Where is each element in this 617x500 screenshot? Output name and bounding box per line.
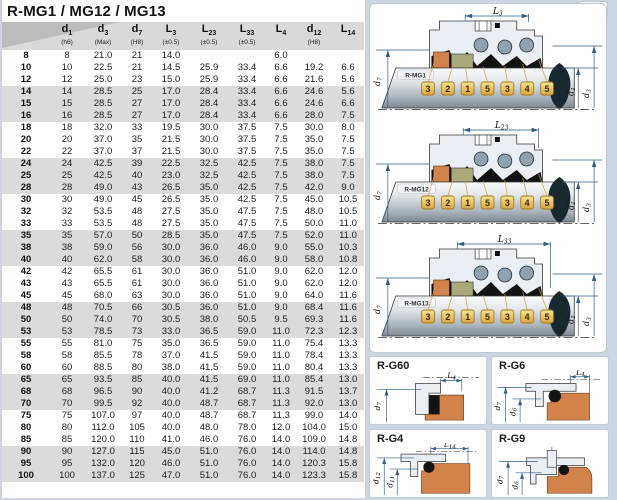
svg-text:5: 5 xyxy=(545,312,550,322)
value-cell: 53 xyxy=(50,326,84,338)
value-cell: 42.0 xyxy=(296,182,332,194)
row-size-cell: 55 xyxy=(2,338,50,350)
row-size-cell: 16 xyxy=(2,110,50,122)
value-cell: 35.0 xyxy=(190,194,228,206)
value-cell: 48 xyxy=(50,302,84,314)
value-cell: 6.0 xyxy=(266,50,296,62)
row-size-cell: 95 xyxy=(2,458,50,470)
value-cell: 38 xyxy=(50,242,84,254)
row-size-cell: 25 xyxy=(2,170,50,182)
dim-label-d11: d11 xyxy=(386,476,396,488)
value-cell: 42.5 xyxy=(228,158,266,170)
callout-badges: 3 2 1 5 3 4 5 xyxy=(422,82,554,95)
value-cell: 64.0 xyxy=(296,290,332,302)
dim-label-d7: d7 xyxy=(493,402,503,411)
value-cell: 7.5 xyxy=(266,230,296,242)
row-size-cell: 35 xyxy=(2,230,50,242)
value-cell: 30.0 xyxy=(152,290,190,302)
value-cell: 46.0 xyxy=(228,242,266,254)
value-cell: 28.5 xyxy=(84,110,122,122)
value-cell: 70 xyxy=(50,398,84,410)
value-cell: 90 xyxy=(122,386,152,398)
value-cell: 21.5 xyxy=(152,134,190,146)
row-size-cell: 70 xyxy=(2,398,50,410)
value-cell: 13.0 xyxy=(332,374,364,386)
value-cell: 47.5 xyxy=(228,206,266,218)
value-cell: 13.3 xyxy=(332,362,364,374)
value-cell: 12.0 xyxy=(332,266,364,278)
value-cell: 59.0 xyxy=(228,350,266,362)
row-size-cell: 18 xyxy=(2,122,50,134)
value-cell: 35.0 xyxy=(152,338,190,350)
value-cell: 45 xyxy=(50,290,84,302)
table-row: 505074.07030.538.050.59.569.311.6 xyxy=(2,314,364,326)
value-cell: 12 xyxy=(50,74,84,86)
value-cell: 42.5 xyxy=(84,170,122,182)
diagram-r-mg13: L33 R-MG13 3 2 1 xyxy=(370,234,606,348)
row-size-cell: 28 xyxy=(2,182,50,194)
value-cell: 5.6 xyxy=(332,74,364,86)
value-cell: 61 xyxy=(122,278,152,290)
seal-face-ring xyxy=(433,280,449,296)
value-cell: 28.5 xyxy=(84,98,122,110)
value-cell: 40.0 xyxy=(152,422,190,434)
value-cell: 39 xyxy=(122,158,152,170)
value-cell: 6.6 xyxy=(266,110,296,122)
seat-card-r-g6: R-G6 L4 d7 d6 xyxy=(491,356,609,425)
table-row: 353557.05028.535.047.57.552.011.0 xyxy=(2,230,364,242)
value-cell: 48.7 xyxy=(190,398,228,410)
value-cell: 35.0 xyxy=(190,230,228,242)
value-cell: 38.0 xyxy=(296,170,332,182)
value-cell: 6.6 xyxy=(266,98,296,110)
value-cell: 11.6 xyxy=(332,314,364,326)
value-cell: 11.3 xyxy=(266,410,296,422)
value-cell: 51.0 xyxy=(228,278,266,290)
value-cell: 35.0 xyxy=(296,134,332,146)
value-cell: 41.5 xyxy=(190,374,228,386)
dim-label-d12: d12 xyxy=(372,472,382,484)
table-row: 282849.04326.535.042.57.542.09.0 xyxy=(2,182,364,194)
value-cell: 7.5 xyxy=(332,158,364,170)
value-cell: 26.5 xyxy=(152,182,190,194)
value-cell: 10.5 xyxy=(332,206,364,218)
spring-coil xyxy=(474,38,488,52)
value-cell: 36.0 xyxy=(190,290,228,302)
table-row: 383859.05630.036.046.09.055.010.3 xyxy=(2,242,364,254)
table-row: 100100137.012547.051.076.014.0123.315.8 xyxy=(2,470,364,482)
value-cell: 35 xyxy=(50,230,84,242)
value-cell: 45.0 xyxy=(296,194,332,206)
table-row: 151528.52717.028.433.46.624.66.6 xyxy=(2,98,364,110)
row-size-cell: 40 xyxy=(2,254,50,266)
value-cell: 27 xyxy=(122,98,152,110)
spring-coil xyxy=(520,266,534,280)
value-cell: 46.0 xyxy=(228,254,266,266)
value-cell: 75.4 xyxy=(296,338,332,350)
row-size-cell: 48 xyxy=(2,302,50,314)
value-cell: 127.0 xyxy=(84,446,122,458)
value-cell: 46.0 xyxy=(152,458,190,470)
value-cell: 68.7 xyxy=(228,410,266,422)
value-cell: 45 xyxy=(122,194,152,206)
value-cell: 14.8 xyxy=(332,434,364,446)
value-cell: 93.5 xyxy=(84,374,122,386)
value-cell: 74.0 xyxy=(84,314,122,326)
value-cell: 7.5 xyxy=(266,194,296,206)
table-row: 656593.58540.041.569.011.085.413.0 xyxy=(2,374,364,386)
value-cell: 59.0 xyxy=(84,242,122,254)
value-cell: 90 xyxy=(50,446,84,458)
spring-coil xyxy=(520,38,534,52)
value-cell: 95 xyxy=(50,458,84,470)
value-cell: 26.5 xyxy=(152,194,190,206)
table-corner-cell xyxy=(2,22,50,50)
row-size-cell: 20 xyxy=(2,134,50,146)
row-size-cell: 22 xyxy=(2,146,50,158)
value-cell: 69.0 xyxy=(228,374,266,386)
value-cell: 80 xyxy=(122,362,152,374)
dim-label-d7: d7 xyxy=(373,77,383,86)
dim-label-d3: d3 xyxy=(582,89,592,98)
dim-label-d7: d7 xyxy=(496,475,506,484)
value-cell: 25.0 xyxy=(84,74,122,86)
value-cell: 100 xyxy=(50,470,84,482)
value-cell: 120 xyxy=(122,458,152,470)
svg-text:5: 5 xyxy=(485,84,490,94)
value-cell: 11.0 xyxy=(332,218,364,230)
value-cell: 48 xyxy=(122,206,152,218)
value-cell: 7.5 xyxy=(266,122,296,134)
value-cell: 24.6 xyxy=(296,98,332,110)
value-cell: 43 xyxy=(50,278,84,290)
seal-diagrams-panel: L3 R-MG1 3 2 1 xyxy=(369,3,607,353)
model-label: R-MG1 xyxy=(405,72,426,79)
value-cell: 51.0 xyxy=(228,266,266,278)
value-cell: 12.3 xyxy=(332,326,364,338)
table-row: 252542.54023.032.542.57.538.07.5 xyxy=(2,170,364,182)
value-cell: 76.0 xyxy=(228,458,266,470)
svg-text:4: 4 xyxy=(525,312,530,322)
value-cell: 7.5 xyxy=(266,134,296,146)
value-cell: 59.0 xyxy=(228,326,266,338)
value-cell: 38.0 xyxy=(152,362,190,374)
value-cell: 37.0 xyxy=(84,146,122,158)
value-cell: 7.5 xyxy=(332,146,364,158)
table-row: 585885.57837.041.559.011.078.413.3 xyxy=(2,350,364,362)
value-cell: 59.0 xyxy=(228,338,266,350)
value-cell: 25 xyxy=(122,86,152,98)
col-header-L3: L3(±0.5) xyxy=(152,22,190,50)
svg-text:3: 3 xyxy=(505,84,510,94)
value-cell: 9.5 xyxy=(266,314,296,326)
value-cell: 137.0 xyxy=(84,470,122,482)
value-cell: 17.0 xyxy=(152,98,190,110)
seat-diagram-r-g6: L4 d7 d6 xyxy=(492,370,608,424)
value-cell: 28.0 xyxy=(296,110,332,122)
value-cell: 36.5 xyxy=(190,326,228,338)
value-cell: 37 xyxy=(122,146,152,158)
value-cell: 33 xyxy=(50,218,84,230)
value-cell: 99.5 xyxy=(84,398,122,410)
value-cell: 42.5 xyxy=(228,194,266,206)
table-row: 303049.04526.535.042.57.545.010.5 xyxy=(2,194,364,206)
value-cell: 85.4 xyxy=(296,374,332,386)
table-row: 161628.52717.028.433.46.628.07.5 xyxy=(2,110,364,122)
o-ring xyxy=(423,462,434,473)
value-cell: 105 xyxy=(122,422,152,434)
table-row: 535378.57333.036.559.011.072.312.3 xyxy=(2,326,364,338)
value-cell: 33.4 xyxy=(228,62,266,74)
table-row: 434365.56130.036.051.09.062.012.0 xyxy=(2,278,364,290)
value-cell: 9.0 xyxy=(266,290,296,302)
svg-text:1: 1 xyxy=(465,312,470,322)
value-cell: 30.0 xyxy=(152,242,190,254)
value-cell: 62.0 xyxy=(296,278,332,290)
value-cell: 33.4 xyxy=(228,110,266,122)
value-cell: 10.8 xyxy=(332,254,364,266)
dim-label-L3: L3 xyxy=(492,7,503,18)
value-cell: 55 xyxy=(50,338,84,350)
table-row: 101022.52114.525.933.46.619.26.6 xyxy=(2,62,364,74)
value-cell: 61 xyxy=(122,266,152,278)
value-cell: 80 xyxy=(50,422,84,434)
value-cell: 43 xyxy=(122,182,152,194)
table-row: 484870.56630.536.051.09.068.411.6 xyxy=(2,302,364,314)
value-cell: 48 xyxy=(122,218,152,230)
table-row: 555581.07535.036.559.011.075.413.3 xyxy=(2,338,364,350)
value-cell: 112.0 xyxy=(84,422,122,434)
value-cell xyxy=(228,50,266,62)
value-cell: 51.0 xyxy=(190,446,228,458)
value-cell: 35 xyxy=(122,134,152,146)
value-cell: 50 xyxy=(50,314,84,326)
o-ring xyxy=(549,390,562,403)
table-row: 8080112.010540.048.078.012.0104.015.0 xyxy=(2,422,364,434)
value-cell: 56 xyxy=(122,242,152,254)
value-cell: 35.0 xyxy=(190,206,228,218)
svg-text:4: 4 xyxy=(525,198,530,208)
value-cell: 7.5 xyxy=(266,182,296,194)
value-cell: 13.7 xyxy=(332,386,364,398)
value-cell: 30.0 xyxy=(190,122,228,134)
svg-text:3: 3 xyxy=(426,312,431,322)
value-cell: 70 xyxy=(122,314,152,326)
value-cell: 40 xyxy=(50,254,84,266)
table-row: 202037.03521.530.037.57.535.07.5 xyxy=(2,134,364,146)
table-row: 121225.02315.025.933.46.621.65.6 xyxy=(2,74,364,86)
table-body: 8821.02114.06.0101022.52114.525.933.46.6… xyxy=(2,50,364,482)
row-size-cell: 100 xyxy=(2,470,50,482)
value-cell: 11.6 xyxy=(332,290,364,302)
value-cell: 75 xyxy=(122,338,152,350)
row-size-cell: 10 xyxy=(2,62,50,74)
value-cell: 62.0 xyxy=(296,266,332,278)
value-cell: 21.5 xyxy=(152,146,190,158)
value-cell: 5.6 xyxy=(332,86,364,98)
value-cell: 30 xyxy=(50,194,84,206)
svg-text:1: 1 xyxy=(465,84,470,94)
seat-card-r-g60: R-G60 L4 d7 xyxy=(369,356,487,425)
value-cell: 6.6 xyxy=(332,62,364,74)
value-cell: 65.5 xyxy=(84,266,122,278)
value-cell: 32.5 xyxy=(190,170,228,182)
value-cell: 81.0 xyxy=(84,338,122,350)
value-cell: 14.0 xyxy=(152,50,190,62)
value-cell: 37.0 xyxy=(84,134,122,146)
value-cell: 11.6 xyxy=(332,302,364,314)
row-size-cell: 43 xyxy=(2,278,50,290)
col-header-d3: d3(Max) xyxy=(84,22,122,50)
value-cell: 24.6 xyxy=(296,86,332,98)
dim-label-d7: d7 xyxy=(373,305,383,314)
value-cell: 40.0 xyxy=(152,410,190,422)
value-cell: 30.0 xyxy=(152,254,190,266)
row-size-cell: 65 xyxy=(2,374,50,386)
diagram-r-mg1: L3 R-MG1 3 2 1 xyxy=(370,6,606,120)
table-row: 404062.05830.036.046.09.058.010.8 xyxy=(2,254,364,266)
value-cell: 13.3 xyxy=(332,338,364,350)
value-cell: 92.0 xyxy=(296,398,332,410)
model-label: R-MG13 xyxy=(404,300,429,307)
table-row: 222237.03721.530.037.57.535.07.5 xyxy=(2,146,364,158)
value-cell: 8 xyxy=(50,50,84,62)
seat-card-r-g4: R-G4 L14 d12 d11 xyxy=(369,429,487,498)
table-row: 141428.52517.028.433.46.624.65.6 xyxy=(2,86,364,98)
value-cell: 104.0 xyxy=(296,422,332,434)
value-cell: 58 xyxy=(50,350,84,362)
value-cell: 36.0 xyxy=(190,254,228,266)
value-cell: 17.0 xyxy=(152,86,190,98)
value-cell: 14.0 xyxy=(266,470,296,482)
value-cell: 11.0 xyxy=(266,374,296,386)
value-cell: 10.5 xyxy=(332,194,364,206)
value-cell: 120.0 xyxy=(84,434,122,446)
value-cell: 22 xyxy=(50,146,84,158)
value-cell: 70.5 xyxy=(84,302,122,314)
value-cell: 99.0 xyxy=(296,410,332,422)
col-header-L4: L4 xyxy=(266,22,296,50)
value-cell: 53.5 xyxy=(84,218,122,230)
value-cell: 41.0 xyxy=(152,434,190,446)
value-cell: 49.0 xyxy=(84,182,122,194)
value-cell: 97 xyxy=(122,410,152,422)
value-cell: 10 xyxy=(50,62,84,74)
value-cell: 36.0 xyxy=(190,302,228,314)
value-cell: 40.0 xyxy=(152,386,190,398)
value-cell: 15 xyxy=(50,98,84,110)
dimensions-table: d1(h6) d3(Max) d7(H8) L3(±0.5) L23(±0.5)… xyxy=(2,22,364,482)
spring-coil xyxy=(498,154,512,168)
value-cell: 41.5 xyxy=(190,362,228,374)
value-cell: 114.0 xyxy=(296,446,332,458)
value-cell: 36.0 xyxy=(190,242,228,254)
value-cell: 15.8 xyxy=(332,458,364,470)
col-header-L14: L14 xyxy=(332,22,364,50)
row-size-cell: 24 xyxy=(2,158,50,170)
value-cell: 92 xyxy=(122,398,152,410)
col-header-L23: L23(±0.5) xyxy=(190,22,228,50)
value-cell: 80.4 xyxy=(296,362,332,374)
value-cell: 49.0 xyxy=(84,194,122,206)
row-size-cell: 45 xyxy=(2,290,50,302)
value-cell: 62.0 xyxy=(84,254,122,266)
svg-text:3: 3 xyxy=(426,198,431,208)
seat-ring xyxy=(451,282,473,296)
value-cell: 21 xyxy=(122,62,152,74)
value-cell: 78.4 xyxy=(296,350,332,362)
set-screw xyxy=(495,251,500,256)
diagram-r-mg12: L23 R-MG12 3 2 1 xyxy=(370,120,606,234)
page-title: R-MG1 / MG12 / MG13 xyxy=(2,0,365,22)
value-cell: 11.0 xyxy=(266,338,296,350)
table-row: 333353.54827.535.047.57.550.011.0 xyxy=(2,218,364,230)
col-header-d1: d1(h6) xyxy=(50,22,84,50)
dim-label-L33: L33 xyxy=(497,235,512,246)
value-cell: 14.5 xyxy=(152,62,190,74)
table-header-row: d1(h6) d3(Max) d7(H8) L3(±0.5) L23(±0.5)… xyxy=(2,22,364,50)
spring-coil xyxy=(520,152,534,166)
value-cell: 27.5 xyxy=(152,218,190,230)
svg-text:3: 3 xyxy=(426,84,431,94)
value-cell: 28.5 xyxy=(152,230,190,242)
spring-coil xyxy=(498,40,512,54)
svg-text:5: 5 xyxy=(485,312,490,322)
seat-card-r-g9: R-G9 d7 d6 xyxy=(491,429,609,498)
value-cell: 53.5 xyxy=(84,206,122,218)
table-row: 606088.58038.041.559.011.080.413.3 xyxy=(2,362,364,374)
value-cell: 68 xyxy=(50,386,84,398)
value-cell: 123.3 xyxy=(296,470,332,482)
row-size-cell: 42 xyxy=(2,266,50,278)
value-cell: 9.0 xyxy=(332,182,364,194)
value-cell: 45.0 xyxy=(152,446,190,458)
value-cell: 37.5 xyxy=(228,134,266,146)
col-header-L33: L33(±0.5) xyxy=(228,22,266,50)
dim-label-d3: d3 xyxy=(582,203,592,212)
value-cell: 11.0 xyxy=(266,326,296,338)
col-header-d12: d12(H8) xyxy=(296,22,332,50)
value-cell: 27.5 xyxy=(152,206,190,218)
value-cell: 6.6 xyxy=(332,98,364,110)
value-cell: 37.0 xyxy=(152,350,190,362)
value-cell: 19.2 xyxy=(296,62,332,74)
value-cell: 11.0 xyxy=(266,350,296,362)
value-cell: 51.0 xyxy=(228,290,266,302)
elastomer xyxy=(429,395,440,414)
row-size-cell: 12 xyxy=(2,74,50,86)
value-cell: 22.5 xyxy=(152,158,190,170)
row-size-cell: 8 xyxy=(2,50,50,62)
value-cell: 32.0 xyxy=(84,122,122,134)
value-cell: 27 xyxy=(122,110,152,122)
value-cell: 25.9 xyxy=(190,74,228,86)
value-cell: 18 xyxy=(50,122,84,134)
value-cell: 7.5 xyxy=(266,158,296,170)
spring-coil xyxy=(498,268,512,282)
row-size-cell: 38 xyxy=(2,242,50,254)
value-cell: 28.4 xyxy=(190,110,228,122)
value-cell: 9.0 xyxy=(266,266,296,278)
value-cell: 11.0 xyxy=(332,230,364,242)
value-cell: 125 xyxy=(122,470,152,482)
svg-text:2: 2 xyxy=(445,84,450,94)
row-size-cell: 75 xyxy=(2,410,50,422)
model-label: R-MG12 xyxy=(404,186,429,193)
value-cell: 109.0 xyxy=(296,434,332,446)
value-cell: 11.0 xyxy=(266,362,296,374)
value-cell: 47.5 xyxy=(228,230,266,242)
